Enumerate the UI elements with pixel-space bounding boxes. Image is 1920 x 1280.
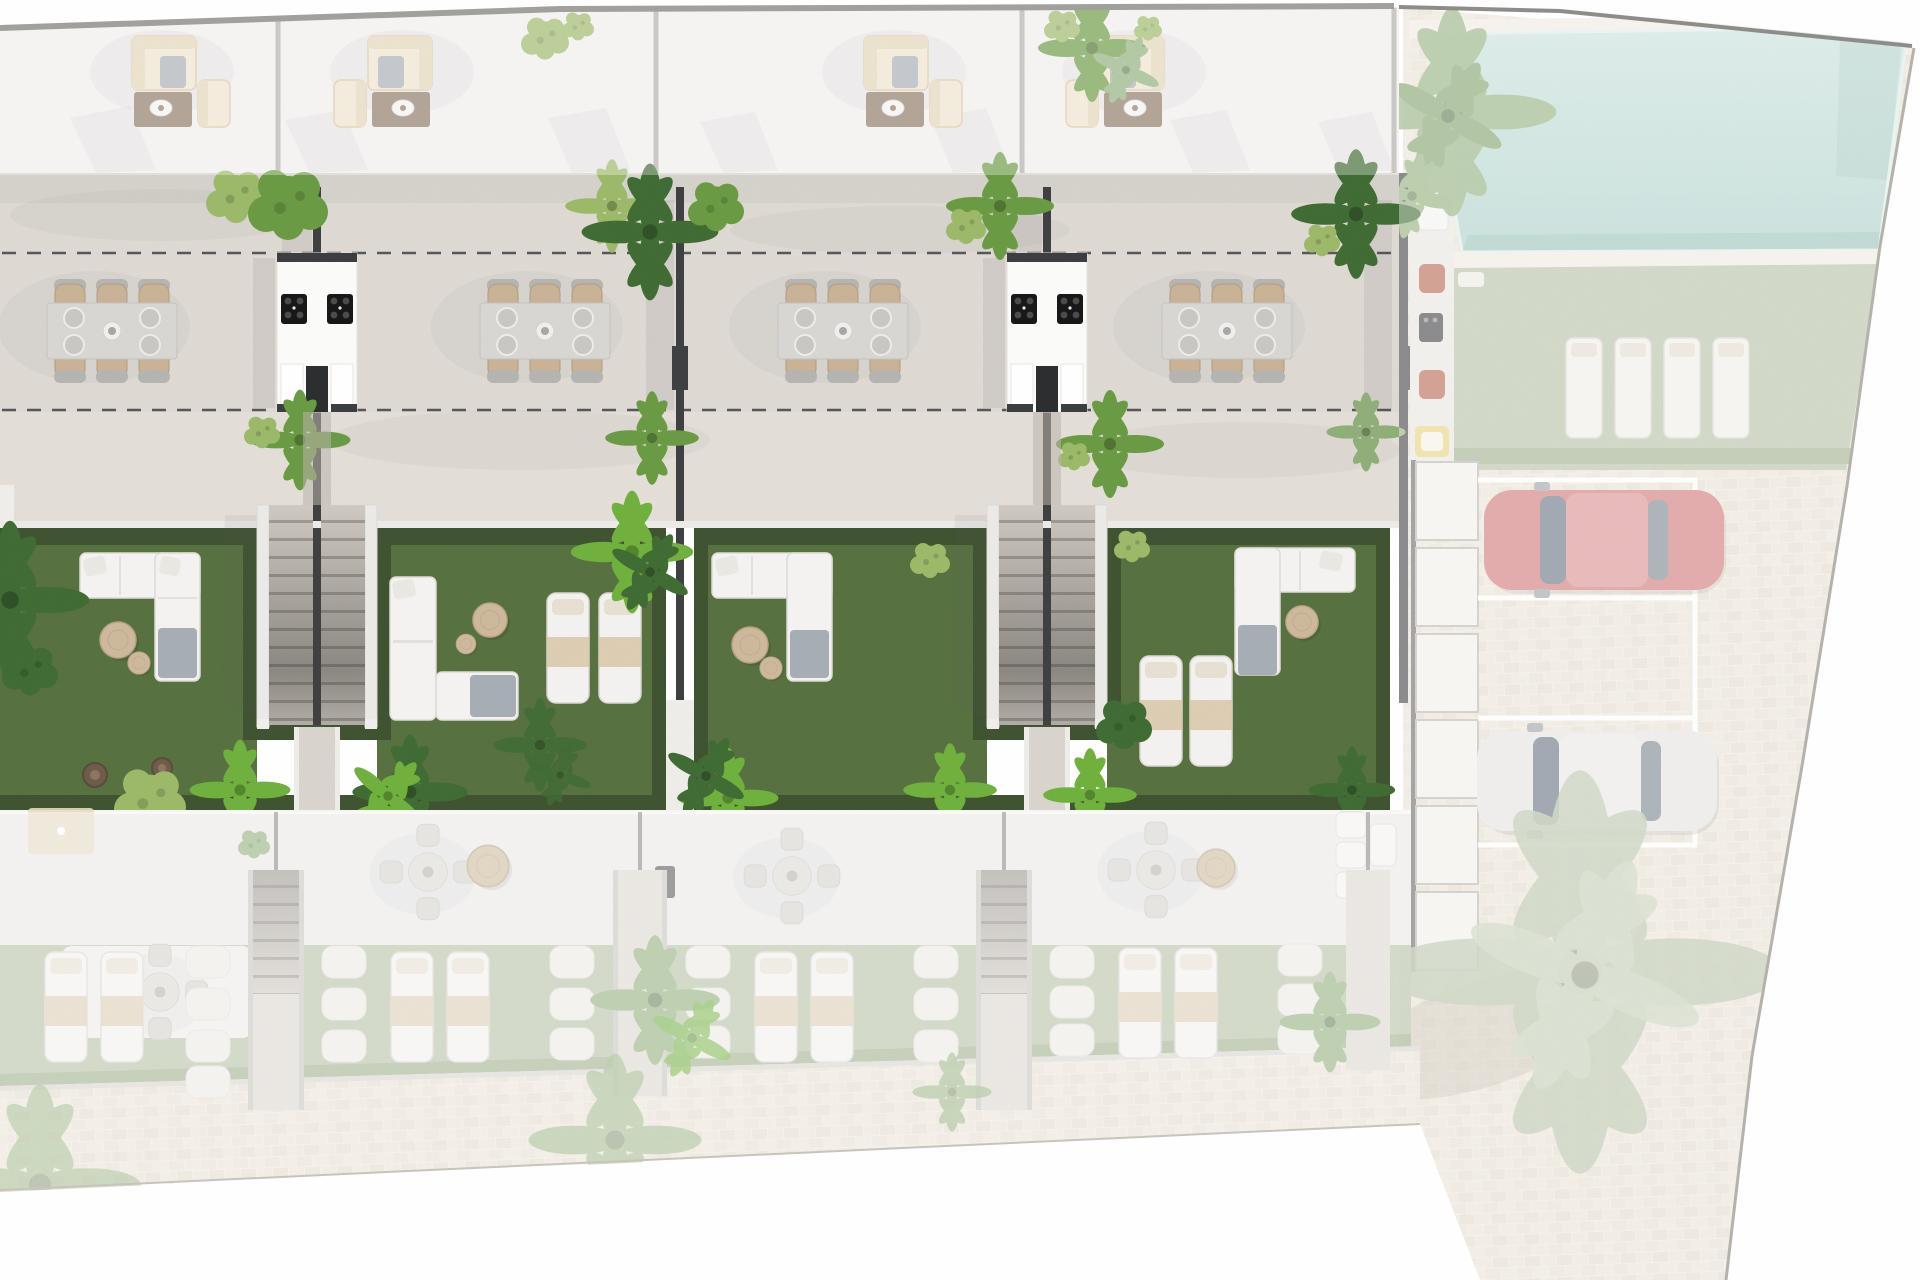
site-plan-render: architectural site plan, top-down 3D ren… <box>0 0 1920 1280</box>
texture-grain <box>0 0 1920 1280</box>
site-plan-canvas: architectural site plan, top-down 3D ren… <box>0 0 1920 1280</box>
